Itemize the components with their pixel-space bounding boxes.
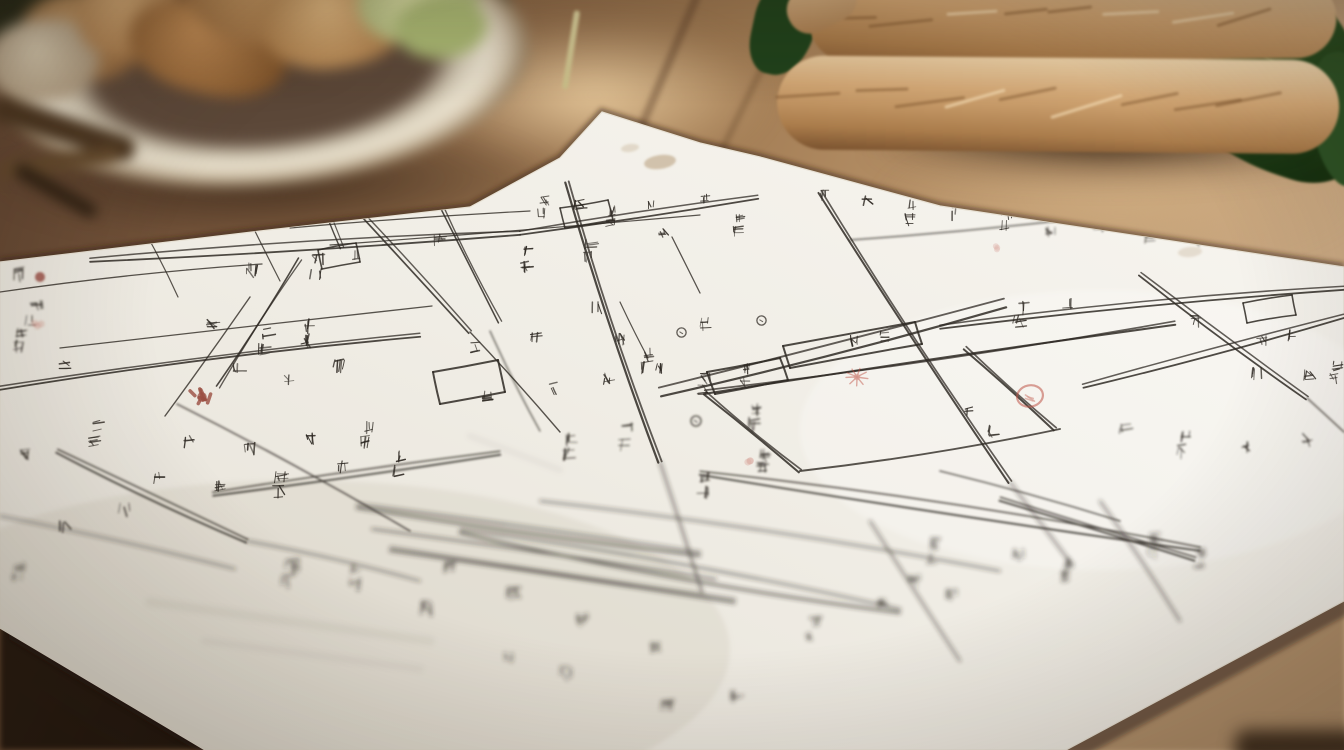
paper-sheet [0, 0, 1344, 750]
glyph-cluster [399, 190, 408, 199]
glyph-stroke [63, 523, 64, 533]
glyph-stroke [218, 481, 219, 491]
glyph-stroke [507, 588, 508, 597]
glyph-stroke [1303, 442, 1310, 443]
glyph-stroke [477, 188, 478, 197]
glyph-stroke [743, 369, 749, 370]
photo-scene [0, 0, 1344, 750]
glyph-stroke [537, 333, 538, 342]
glyph-stroke [1056, 215, 1057, 220]
glyph-stroke [483, 396, 490, 397]
glyph-stroke [702, 322, 703, 330]
glyph-stroke [483, 187, 484, 194]
glyph-stroke [1155, 222, 1156, 230]
seal-mark [744, 459, 751, 466]
glyph-stroke [880, 331, 881, 335]
glyph-stroke [17, 331, 25, 332]
seal-mark [994, 245, 1000, 251]
glyph-stroke [282, 576, 283, 584]
glyph-stroke [1191, 318, 1200, 319]
seal-mark [854, 374, 861, 381]
glyph-stroke [614, 206, 615, 212]
glyph-stroke [1305, 379, 1314, 380]
glyph-stroke [401, 191, 402, 198]
glyph-stroke [701, 201, 709, 202]
glyph-stroke [510, 588, 521, 589]
glyph-stroke [1194, 566, 1204, 567]
glyph-stroke [298, 561, 299, 572]
glyph-stroke [881, 332, 889, 333]
seal-mark [35, 272, 45, 282]
glyph-stroke [1148, 547, 1157, 548]
glyph-stroke [1149, 222, 1156, 223]
glyph-stroke [1049, 215, 1058, 216]
glyph-stroke [1151, 226, 1154, 232]
glyph-stroke [661, 364, 662, 373]
glyph-stroke [512, 653, 513, 660]
glyph-stroke [1289, 330, 1290, 339]
glyph-stroke [1062, 573, 1063, 577]
seal-mark [34, 322, 41, 329]
glyph-stroke [1196, 227, 1202, 228]
glyph-stroke [670, 701, 671, 710]
glyph-stroke [406, 190, 408, 199]
glyph-stroke [184, 440, 194, 441]
glyph-stroke [606, 221, 614, 222]
glyph-stroke [585, 252, 586, 261]
seal-dot [181, 218, 189, 226]
glyph-stroke [1151, 225, 1152, 232]
seal-dot [35, 272, 45, 282]
glyph-stroke [701, 196, 710, 197]
glyph-stroke [306, 335, 307, 345]
glyph-stroke [707, 473, 708, 481]
glyph-stroke [476, 188, 486, 190]
glyph-stroke [763, 450, 764, 460]
seal-mark [197, 392, 207, 402]
glyph-stroke [1062, 580, 1069, 581]
glyph-stroke [1333, 361, 1334, 364]
glyph-stroke [538, 209, 539, 216]
seal-mark [181, 218, 189, 226]
glyph-stroke [401, 193, 402, 198]
glyph-stroke [710, 373, 711, 380]
glyph-stroke [1063, 307, 1073, 308]
glyph-stroke [1002, 210, 1009, 212]
glyph-stroke [430, 603, 431, 615]
glyph-stroke [423, 601, 424, 608]
glyph-stroke [292, 561, 293, 570]
glyph-stroke [653, 201, 654, 207]
glyph-stroke [337, 360, 338, 372]
glyph-stroke [16, 342, 17, 352]
glyph-stroke [947, 589, 948, 598]
glyph-stroke [27, 451, 28, 459]
glyph-stroke [471, 342, 480, 343]
glyph-stroke [851, 335, 852, 341]
glyph-stroke [619, 439, 630, 440]
seal-mark [198, 401, 199, 403]
glyph-stroke [697, 393, 705, 394]
glyph-stroke [757, 409, 758, 416]
glyph-stroke [1003, 208, 1012, 209]
